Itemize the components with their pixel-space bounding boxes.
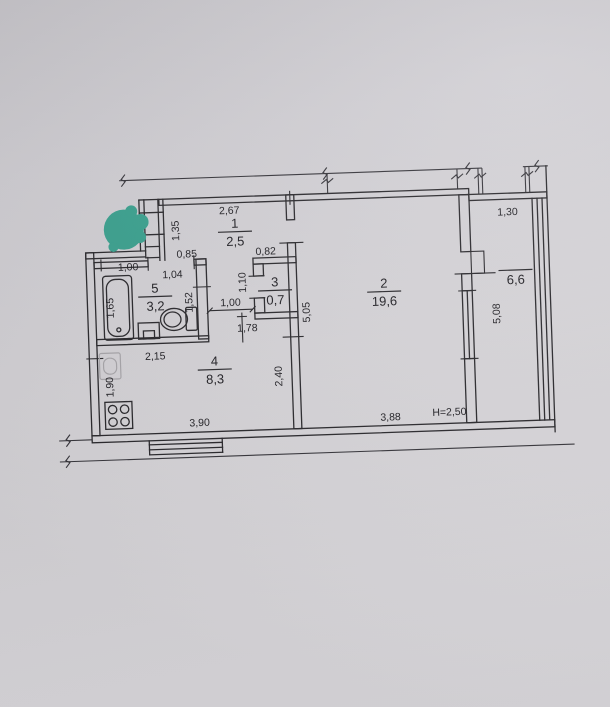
dimension-label: 5,05 (300, 302, 313, 323)
dimension-label: 0,85 (176, 248, 197, 261)
wall-segment (459, 195, 471, 252)
wc-left-wall (253, 264, 263, 276)
wall-top (159, 189, 469, 206)
balcony-outer-edge (546, 166, 555, 432)
balcony-glazing (532, 198, 550, 420)
washbasin-icon (138, 322, 160, 339)
dimension-label: 1,65 (104, 298, 117, 319)
entry-step (139, 212, 163, 213)
wc-left-wall (254, 298, 265, 313)
fraction-line (218, 231, 252, 232)
wall-bottom (92, 420, 555, 443)
door-threshold-tick (279, 242, 303, 243)
room-number-kitchen: 4 (211, 353, 219, 368)
door-jamb-tick (249, 298, 265, 299)
dimension-label: 1,30 (497, 206, 518, 219)
room-area-living-room: 19,6 (372, 293, 398, 309)
balcony-door-threshold (471, 251, 485, 273)
balcony-top-wall (469, 192, 547, 201)
fraction-line (198, 369, 232, 370)
room-area-wc: 0,7 (266, 292, 285, 308)
door-jamb-tick (249, 276, 265, 277)
kitchen-sink-icon (99, 353, 121, 380)
wall-left (86, 253, 100, 436)
dimension-label: 3,88 (380, 411, 401, 424)
dimension-label: 3,90 (189, 417, 210, 430)
dim-tick (283, 336, 304, 337)
fraction-line (138, 296, 172, 297)
dimension-label: H=2,50 (432, 406, 467, 419)
break-mark (521, 171, 533, 176)
facade-line (60, 444, 575, 462)
dimension-label: 1,04 (162, 269, 183, 282)
dimension-label: 2,40 (273, 366, 286, 387)
neighbor-stub (59, 440, 92, 441)
dimension-label: 5,08 (491, 303, 504, 324)
dimension-label: 0,82 (255, 245, 276, 258)
room-number-bathroom: 5 (151, 280, 159, 295)
fraction-line (258, 290, 292, 291)
fraction-line (367, 291, 401, 292)
room-area-balcony: 6,6 (507, 272, 526, 288)
entrance-marker-blob (103, 205, 150, 253)
room-number-living-room: 2 (380, 275, 388, 290)
living-room-wall (287, 243, 301, 429)
dimension-label: 1,00 (118, 261, 139, 274)
dimension-label: 1,78 (237, 322, 258, 335)
stove-icon (105, 401, 133, 429)
floor-plan-photo: { "photo": { "background": "#d4d2d6", "l… (0, 0, 610, 707)
balcony-window (458, 290, 478, 359)
dimension-label: 1,00 (220, 297, 241, 310)
dimension-label: 2,67 (219, 205, 240, 218)
floor-plan-drawing: 12,5219,630,748,353,26,6 2,671,350,851,0… (44, 143, 585, 491)
dimension-label: 1,90 (104, 377, 117, 398)
wc-bottom-wall (255, 312, 298, 319)
door-threshold-tick (455, 273, 496, 274)
wall-entry-top (86, 251, 146, 259)
room-area-hallway: 2,5 (226, 233, 245, 249)
dimension-label: 1,35 (170, 220, 183, 241)
room-area-kitchen: 8,3 (206, 371, 225, 387)
fraction-line (498, 269, 532, 270)
dimension-label: 1,10 (236, 272, 249, 293)
dimension-label: 1,52 (183, 292, 196, 313)
dimension-label: 2,15 (145, 350, 166, 363)
break-mark (474, 173, 486, 178)
floor-plan-svg: 12,5219,630,748,353,26,6 2,671,350,851,0… (44, 143, 585, 491)
room-area-labels: 12,5219,630,748,353,26,6 (135, 205, 536, 389)
wall-segment (462, 274, 473, 291)
room-area-bathroom: 3,2 (146, 298, 165, 314)
room-number-wc: 3 (271, 274, 279, 289)
room-number-hallway: 1 (231, 216, 239, 231)
